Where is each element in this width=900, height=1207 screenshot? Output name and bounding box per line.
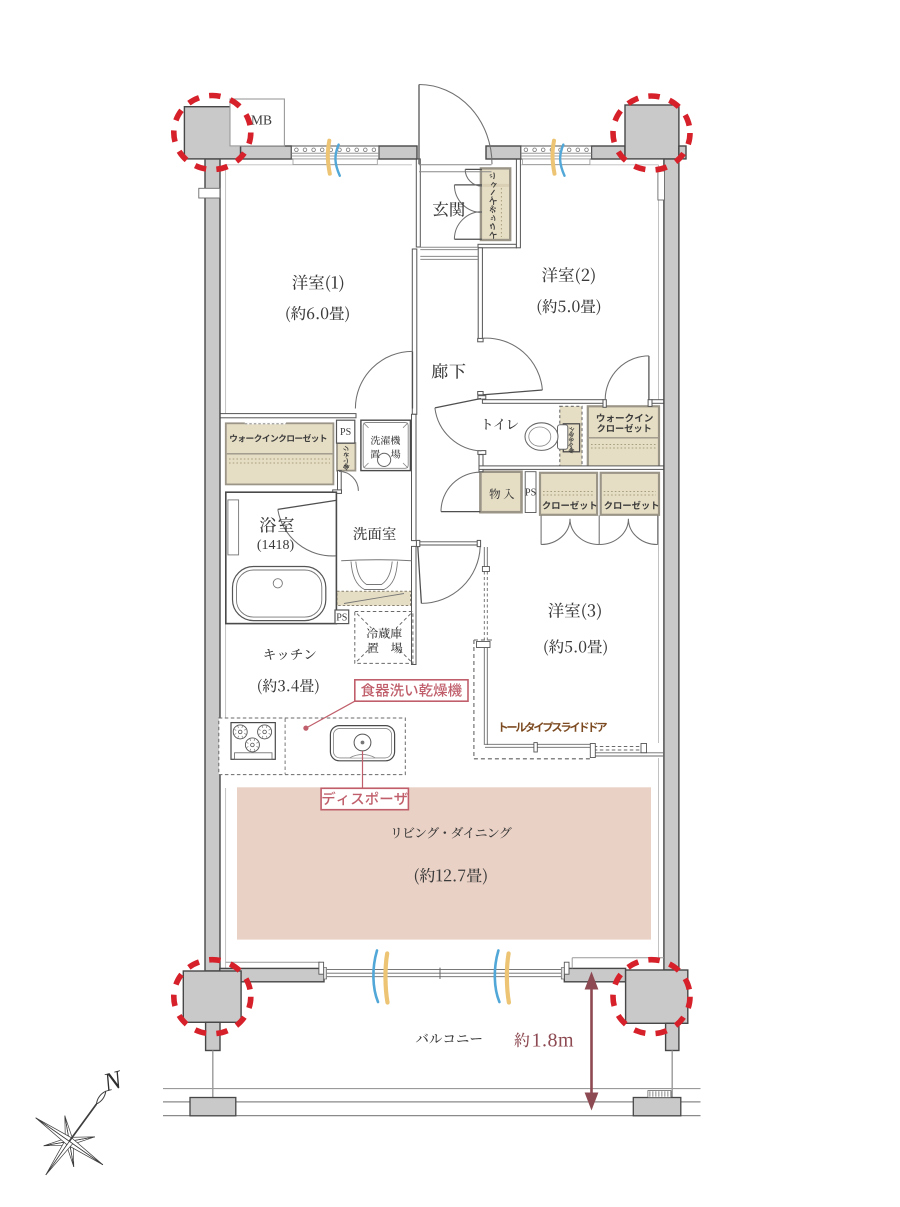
- svg-text:PS: PS: [340, 427, 351, 438]
- svg-text:(1418): (1418): [257, 538, 295, 553]
- svg-text:1.8m: 1.8m: [532, 1030, 575, 1052]
- svg-text:PS: PS: [336, 613, 347, 624]
- svg-text:MB: MB: [251, 113, 272, 128]
- svg-text:PS: PS: [525, 488, 536, 499]
